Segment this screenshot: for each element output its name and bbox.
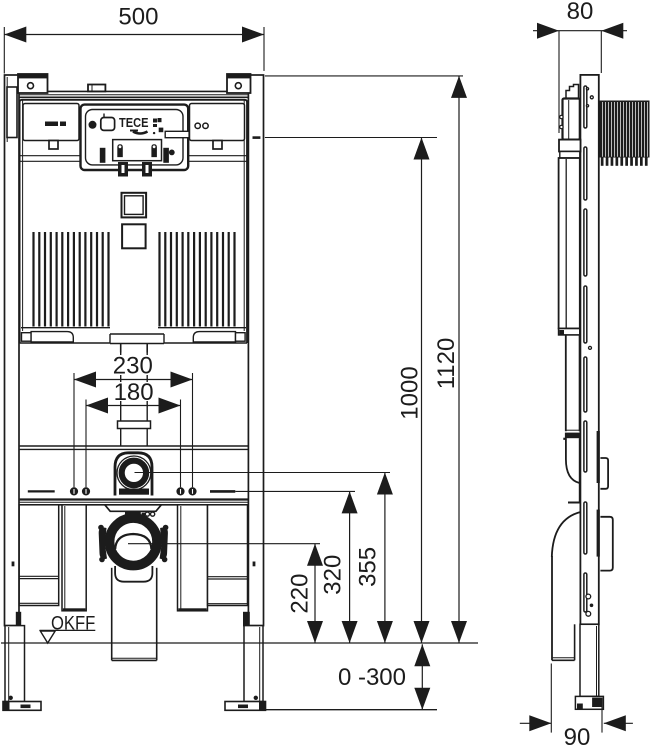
svg-text:180: 180 bbox=[114, 379, 154, 406]
svg-text:0 -300: 0 -300 bbox=[338, 664, 406, 691]
svg-text:500: 500 bbox=[118, 4, 158, 31]
svg-text:355: 355 bbox=[355, 547, 382, 587]
svg-text:320: 320 bbox=[320, 555, 347, 595]
svg-text:220: 220 bbox=[287, 574, 314, 614]
svg-text:80: 80 bbox=[567, 0, 594, 25]
svg-text:1120: 1120 bbox=[433, 338, 460, 390]
svg-text:1000: 1000 bbox=[396, 366, 423, 419]
svg-text:230: 230 bbox=[113, 353, 153, 380]
svg-text:90: 90 bbox=[564, 724, 591, 750]
svg-text:OKFF: OKFF bbox=[51, 614, 95, 635]
svg-text:TECE: TECE bbox=[119, 116, 149, 130]
